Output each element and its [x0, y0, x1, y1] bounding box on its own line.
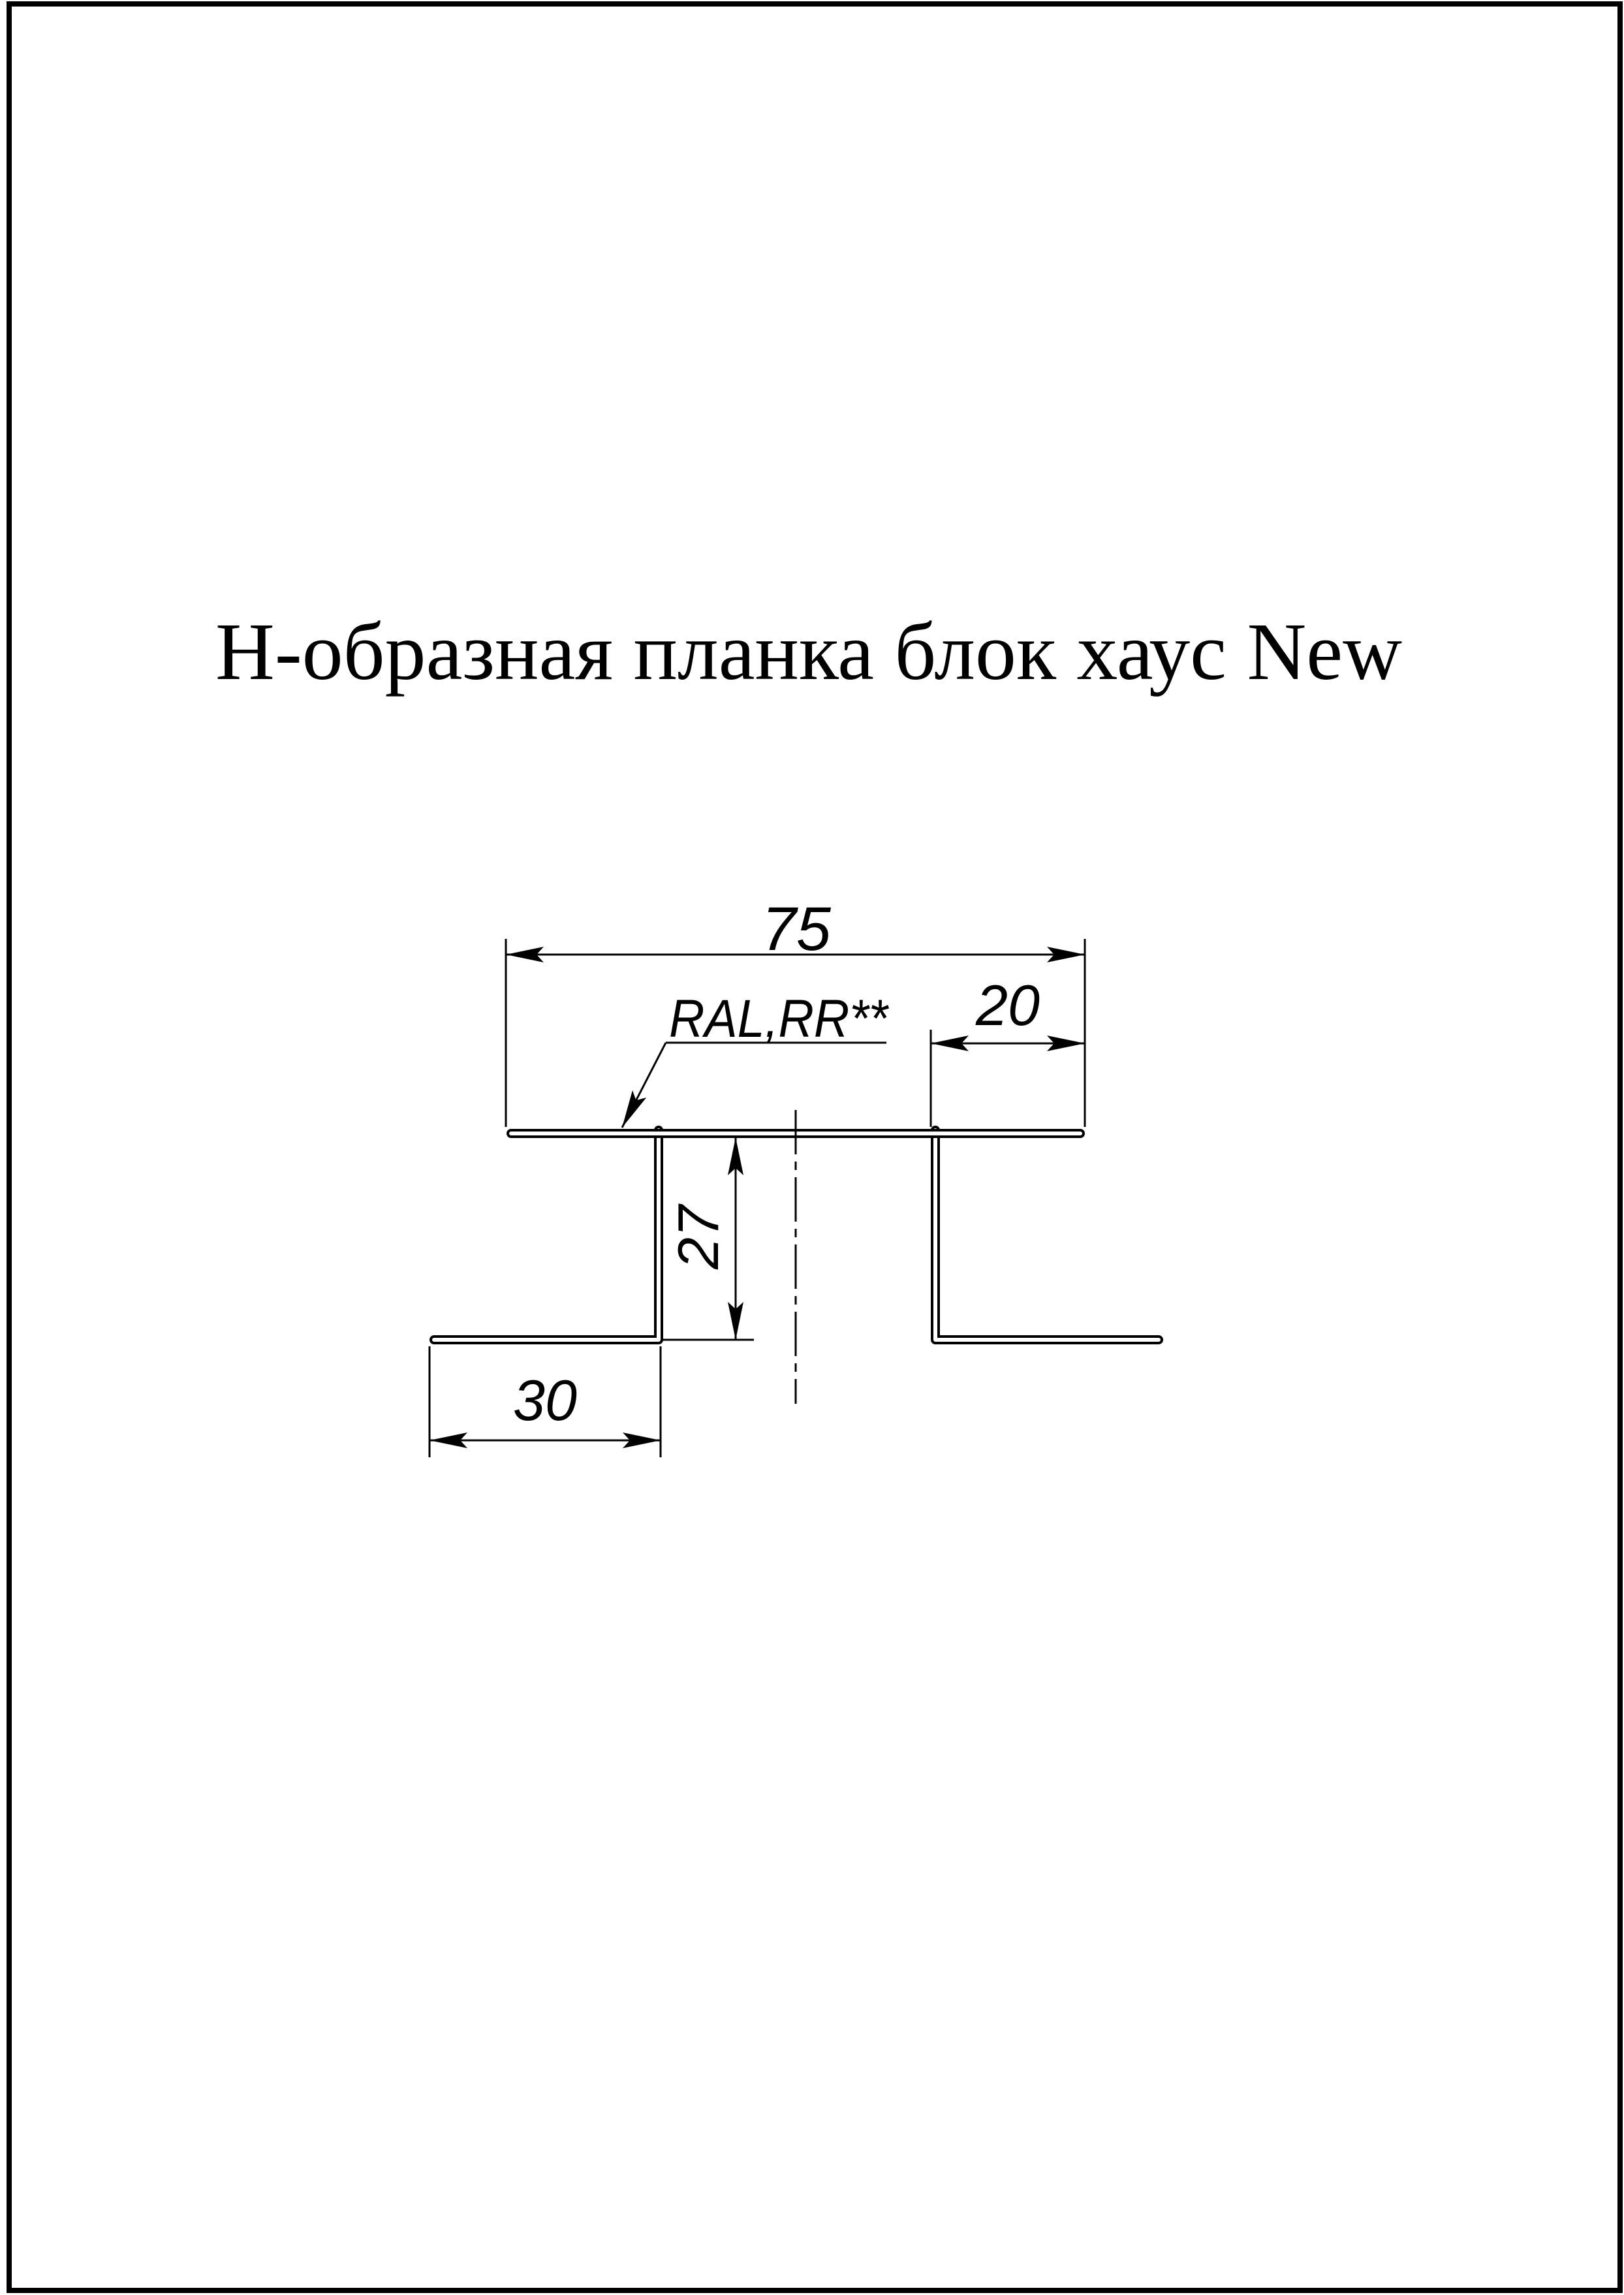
dimension-value-30: 30 [513, 1368, 577, 1432]
profile-right-channel-outline [935, 1130, 1159, 1340]
dimension-value-20: 20 [975, 973, 1040, 1037]
coating-label: RAL,RR** [669, 989, 890, 1049]
dimension-leg-height: 27 [661, 1137, 754, 1340]
dimension-right-offset: 20 [931, 973, 1085, 1127]
page-border-frame [9, 4, 1620, 2290]
technical-drawing-canvas: Н-образная планка блок хаус New 75 [0, 0, 1624, 2295]
drawing-sheet: Н-образная планка блок хаус New 75 [0, 0, 1624, 2295]
dimension-value-27: 27 [666, 1203, 730, 1270]
leader-arrow-icon [615, 1090, 646, 1132]
profile-right-channel-core [935, 1130, 1159, 1340]
page-title: Н-образная планка блок хаус New [215, 607, 1402, 697]
dimension-value-75: 75 [762, 894, 832, 964]
coating-leader: RAL,RR** [615, 989, 889, 1132]
profile-left-channel-core [434, 1130, 659, 1340]
profile-left-channel-outline [434, 1130, 659, 1340]
dimension-bottom-flange: 30 [429, 1346, 661, 1457]
